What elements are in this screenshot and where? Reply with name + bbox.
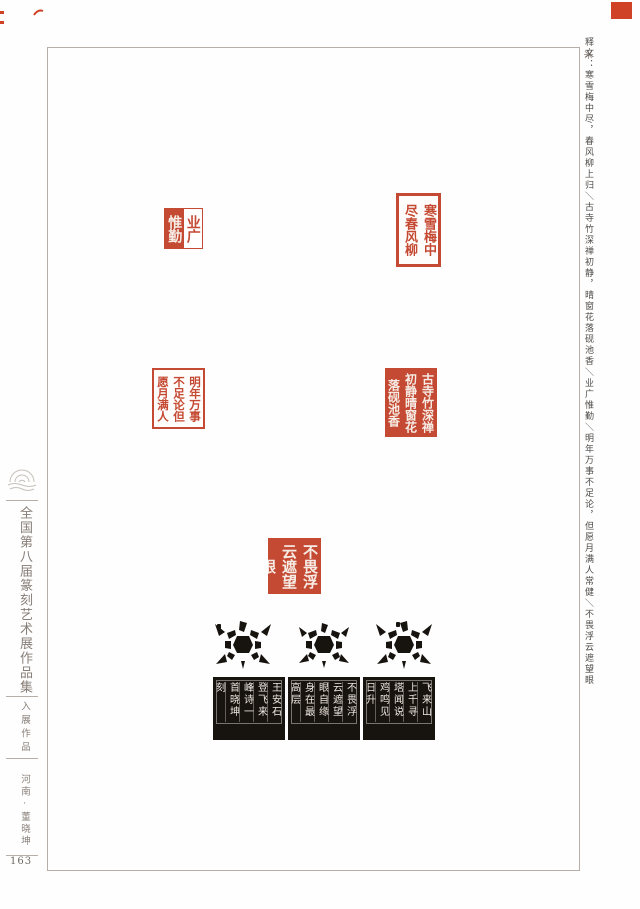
series-title: 全国第八届篆刻艺术展作品集 (15, 506, 34, 692)
inscription-column: 鸡鸣见 (375, 682, 389, 722)
inscription-column: 登飞来 (253, 682, 267, 722)
inscription-column: 刻 (211, 682, 225, 722)
inscription-column: 不畏浮 (342, 682, 356, 722)
edge-mark (0, 21, 4, 24)
sidebar-divider (6, 696, 38, 697)
inscription-column: 云遮望 (328, 682, 342, 722)
rubbing-speck (217, 624, 221, 629)
seal-impression-han-xue-mei: 寒雪梅中尽春风柳上归 (396, 193, 441, 267)
inscription-column: 身在最 (300, 682, 314, 722)
seal-inscription: 寒雪梅中尽春风柳上归 (399, 202, 438, 258)
registration-mark-icon (32, 2, 44, 21)
inscription-block-poem-2: 不畏浮云遮望眼自缘身在最高层 (288, 677, 360, 740)
page-number: 163 (10, 856, 32, 867)
seal-impression-ming-nian: 明年万事不足论但愿月满人常健 (152, 368, 205, 429)
seal-left-half: 惟勤 (165, 209, 184, 248)
inscription-column: 高层 (286, 682, 300, 722)
inscription-column: 峰诗一 (239, 682, 253, 722)
transcription-text: 释文：寒雪梅中尽，春风柳上归＼古寺竹深禅初静，晴窗花落砚池香＼业广惟勤＼明年万事… (582, 37, 595, 705)
page-frame-border (47, 47, 580, 871)
sidebar-divider (6, 758, 38, 759)
turtle-knob-row (213, 620, 434, 675)
seal-inscription: 古寺竹深禅初静晴窗花落砚池香 (386, 372, 437, 434)
seal-impression-bu-wei: 不畏浮云遮望眼 (268, 538, 321, 594)
inscription-column: 王安石 (267, 682, 281, 722)
red-corner-square (611, 2, 632, 19)
inscription-columns: 不畏浮云遮望眼自缘身在最高层 (291, 680, 357, 724)
exhibition-emblem-icon (6, 464, 38, 498)
inscription-columns: 飞来山上千寻塔闻说鸡鸣见日升 (366, 680, 432, 724)
edge-mark (0, 11, 4, 14)
turtle-knob-icon (374, 620, 434, 672)
seal-impression-gu-si: 古寺竹深禅初静晴窗花落砚池香 (385, 368, 437, 437)
seal-inscription: 明年万事不足论但愿月满人常健 (154, 374, 203, 424)
inscription-column: 飞来山 (417, 682, 431, 722)
inscription-column: 塔闻说 (389, 682, 403, 722)
section-label: 入展作品 (17, 701, 31, 757)
turtle-knob-icon (213, 620, 273, 672)
seal-impression-ye-guang-wei-qin: 惟勤 业广 (164, 208, 203, 249)
seal-right-half: 业广 (184, 209, 203, 248)
seal-inscription: 不畏浮云遮望眼 (268, 541, 321, 591)
inscription-columns: 王安石登飞来峰诗一首晓坤刻 (216, 680, 282, 724)
inscription-column: 首晓坤 (225, 682, 239, 722)
inscription-block-colophon: 王安石登飞来峰诗一首晓坤刻 (213, 677, 285, 740)
side-inscription-rubbing: 王安石登飞来峰诗一首晓坤刻 不畏浮云遮望眼自缘身在最高层 飞来山上千寻塔闻说鸡鸣… (213, 620, 434, 742)
inscription-column: 上千寻 (403, 682, 417, 722)
inscription-block-poem-1: 飞来山上千寻塔闻说鸡鸣见日升 (363, 677, 435, 740)
inscription-column: 日升 (361, 682, 375, 722)
catalog-page: 释文：寒雪梅中尽，春风柳上归＼古寺竹深禅初静，晴窗花落砚池香＼业广惟勤＼明年万事… (0, 0, 640, 909)
artist-name: 河南·董晓坤 (17, 774, 31, 848)
sidebar-divider (6, 500, 38, 501)
inscription-block-row: 王安石登飞来峰诗一首晓坤刻 不畏浮云遮望眼自缘身在最高层 飞来山上千寻塔闻说鸡鸣… (213, 677, 434, 740)
turtle-knob-icon (294, 620, 354, 672)
inscription-column: 眼自缘 (314, 682, 328, 722)
